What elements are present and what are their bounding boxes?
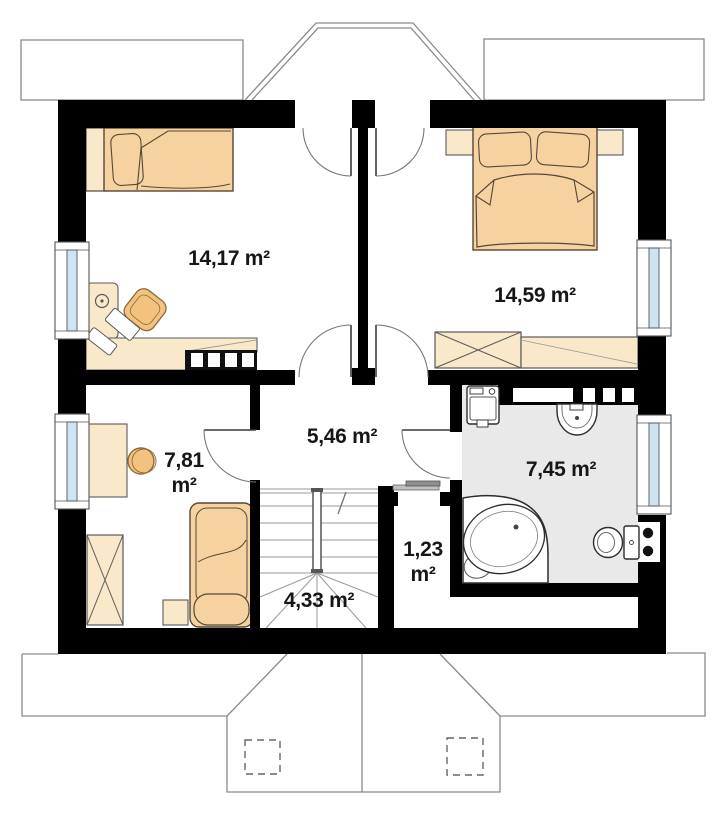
nightstand-left	[446, 130, 473, 155]
wall-right-middle	[638, 334, 666, 418]
lower-roof-hip-right	[440, 654, 500, 716]
wall-hallway-top-right	[428, 370, 638, 385]
wall-bathroom-left-upper	[450, 385, 462, 432]
dormer-outline-inner	[252, 28, 474, 100]
double-bed-pillow-left	[478, 132, 532, 168]
floor-plan-drawing	[0, 0, 726, 814]
stairs-direction-arrow	[338, 492, 346, 514]
label-closet-value: 1,23	[383, 537, 463, 562]
wall-top-left	[58, 100, 295, 128]
staircase-rail	[311, 488, 323, 573]
wardrobe-cabinet-room	[87, 535, 123, 625]
label-cabinet-room: 7,81 m²	[144, 448, 224, 498]
eave-top-right	[484, 39, 704, 100]
dormer-outline-outer	[245, 23, 481, 100]
shelf-radiator	[185, 350, 257, 370]
furniture-bedroom-right	[435, 127, 638, 368]
wall-hallway-top-left	[86, 370, 295, 385]
label-hallway: 5,46 m²	[262, 425, 422, 449]
lower-roof-outline	[22, 653, 705, 792]
wall-top-right	[430, 100, 666, 128]
wall-top-center-stub	[352, 100, 375, 128]
single-bed-pillow	[110, 133, 143, 186]
wall-left-upper	[58, 100, 86, 245]
dormer-door-right	[376, 128, 424, 176]
wall-bathroom-bottom	[450, 583, 645, 597]
wall-bedroom-divider	[358, 128, 368, 370]
wardrobe-right-bedroom	[435, 332, 638, 368]
wall-right-upper	[638, 100, 666, 243]
double-bed-pillow-right	[536, 131, 590, 168]
window-bedroom-left	[55, 242, 89, 339]
washing-machine	[467, 386, 499, 427]
label-bedroom-left: 14,17 m²	[149, 247, 309, 271]
single-bed-frame	[86, 128, 106, 191]
wall-notch-dots	[638, 522, 660, 562]
door-bedroom-left	[299, 325, 351, 377]
eave-top-left	[21, 40, 243, 100]
label-closet-unit: m²	[383, 562, 463, 587]
label-cabinet-room-value: 7,81	[144, 448, 224, 473]
side-table	[163, 600, 188, 625]
label-bedroom-right: 14,59 m²	[455, 284, 615, 308]
dormer-door-left	[303, 128, 351, 176]
floor-plan-page: 14,17 m² 14,59 m² 5,46 m² 7,81 m² 4,33 m…	[0, 0, 726, 814]
side-desk	[86, 424, 127, 497]
label-closet: 1,23 m²	[383, 537, 463, 587]
chimney-dashed-left	[245, 740, 280, 774]
label-cabinet-room-unit: m²	[144, 473, 224, 498]
wall-cabinet-hall-upper	[250, 385, 260, 430]
lower-roof-hip-left	[227, 654, 287, 716]
label-staircase: 4,33 m²	[239, 589, 399, 613]
chimney-dashed-right	[447, 738, 483, 775]
window-bathroom	[637, 415, 671, 514]
wall-left-middle	[58, 337, 86, 417]
door-closet-sliding	[393, 481, 440, 490]
wall-divider-bottom-stub	[352, 368, 375, 385]
window-bedroom-right	[637, 240, 671, 336]
wall-closet-top-left	[378, 492, 398, 506]
window-cabinet-room	[55, 414, 89, 509]
door-bedroom-right	[376, 325, 428, 377]
label-bathroom: 7,45 m²	[481, 458, 641, 482]
wall-bottom	[58, 628, 666, 654]
nightstand-right	[596, 130, 623, 155]
toilet	[594, 526, 640, 559]
